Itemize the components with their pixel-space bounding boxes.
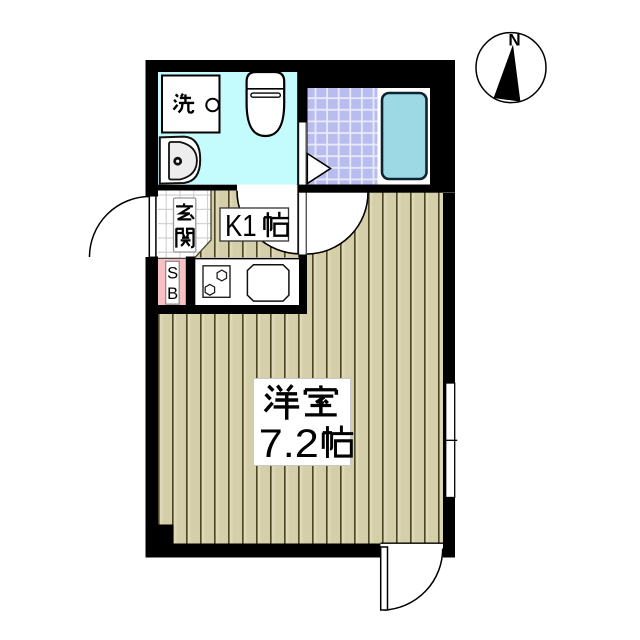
svg-text:K1: K1 — [225, 208, 257, 242]
svg-text:7.2: 7.2 — [259, 420, 319, 465]
svg-text:B: B — [167, 285, 178, 303]
svg-text:N: N — [508, 30, 520, 49]
svg-text:S: S — [167, 265, 178, 283]
